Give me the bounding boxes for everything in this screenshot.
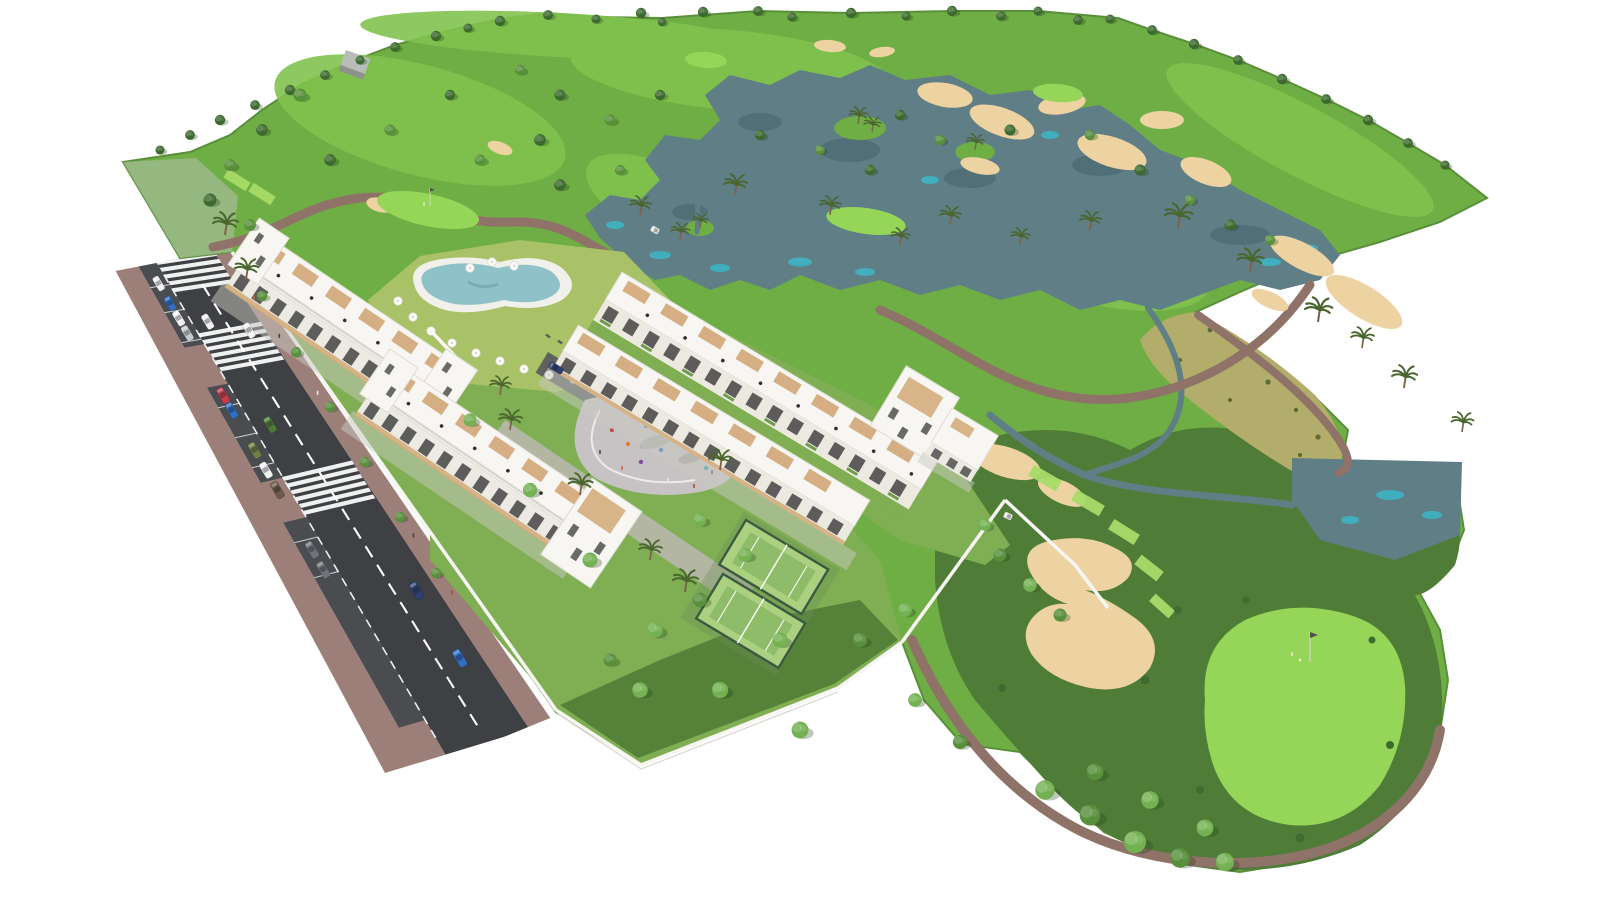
golf-ball bbox=[1299, 659, 1301, 661]
pool-water bbox=[421, 263, 560, 304]
scene-svg bbox=[0, 0, 1600, 900]
aerial-render-canvas bbox=[0, 0, 1600, 900]
